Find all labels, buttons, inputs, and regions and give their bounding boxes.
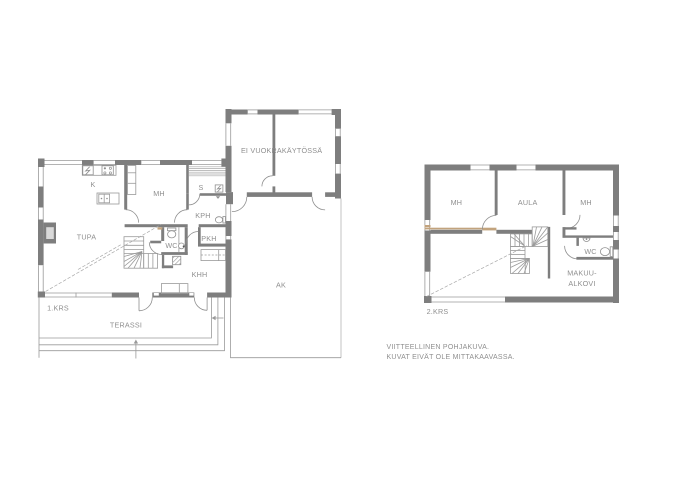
- svg-text:KPH: KPH: [195, 211, 210, 220]
- svg-text:1.KRS: 1.KRS: [47, 303, 69, 312]
- svg-text:WC: WC: [165, 241, 177, 250]
- svg-text:2.KRS: 2.KRS: [427, 307, 449, 316]
- svg-text:K: K: [91, 180, 96, 189]
- svg-text:MH: MH: [580, 198, 592, 207]
- svg-text:ALKOVI: ALKOVI: [568, 279, 595, 288]
- svg-text:EI VUOKRAKÄYTÖSSÄ: EI VUOKRAKÄYTÖSSÄ: [241, 146, 322, 155]
- svg-text:PKH: PKH: [201, 234, 216, 243]
- svg-text:AULA: AULA: [518, 198, 538, 207]
- svg-text:TUPA: TUPA: [77, 232, 96, 241]
- svg-text:MH: MH: [153, 189, 165, 198]
- svg-text:WC: WC: [584, 247, 596, 256]
- svg-text:S: S: [199, 183, 204, 192]
- svg-text:KHH: KHH: [192, 270, 208, 279]
- svg-text:MH: MH: [451, 198, 463, 207]
- svg-text:MAKUU-: MAKUU-: [567, 268, 597, 277]
- svg-text:AK: AK: [276, 280, 286, 289]
- svg-text:KUVAT EIVÄT OLE MITTAKAAVASSA.: KUVAT EIVÄT OLE MITTAKAAVASSA.: [387, 353, 515, 361]
- svg-text:VIITTEELLINEN POHJAKUVA.: VIITTEELLINEN POHJAKUVA.: [387, 344, 490, 351]
- svg-text:TERASSI: TERASSI: [110, 320, 142, 329]
